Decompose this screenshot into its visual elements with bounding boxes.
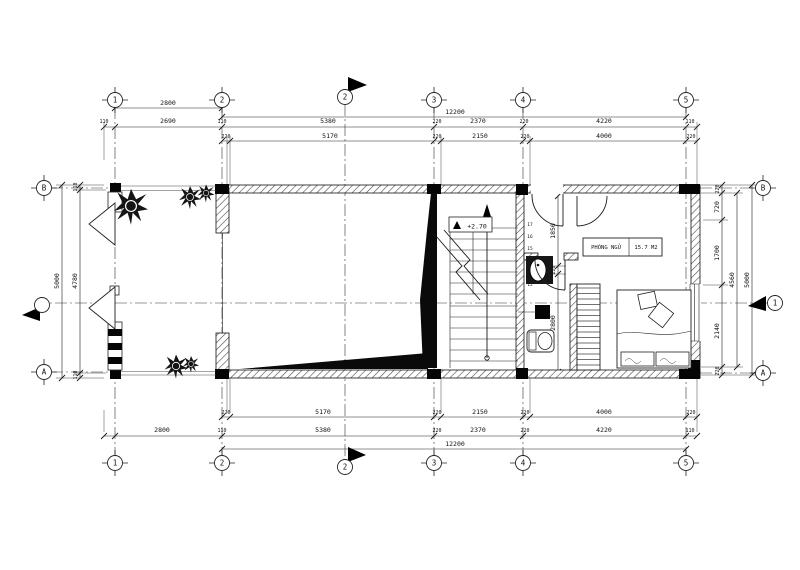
dim-label: 720 [713,201,721,213]
pillow [638,291,658,309]
floor-plan-canvas: +2.70 17 16 15 14 13 12 [0,0,800,570]
pier-yard-bottom [216,333,229,371]
dim-label: 220 [221,410,230,416]
grid-label: 4 [521,96,526,105]
dim-label: 110 [73,182,79,191]
stair-break-line [436,230,488,300]
grid-label: 2 [220,96,225,105]
wall-right [691,185,700,378]
grid-label: 3 [432,96,437,105]
dim-label: 220 [686,134,695,140]
dim-label: 4000 [596,132,612,140]
dim-label: 220 [520,428,529,434]
dimension-ticks [59,105,755,452]
section-flag-icon [348,77,367,92]
dim-label: 220 [686,410,695,416]
grid-label: 5 [684,96,689,105]
dim-label: 2140 [713,323,721,339]
level-label: +2.70 [467,223,487,231]
dim-label: 4220 [596,426,612,434]
dim-label: 110 [99,119,108,125]
dim-label: 110 [685,119,694,125]
tread-number: 15 [527,246,533,252]
grid-label: 2 [220,459,225,468]
gate-leaf-top [89,203,115,245]
dim-label: 220 [715,184,721,193]
dim-label: 1850 [549,223,557,239]
plants [114,185,215,379]
shrub-icon [198,185,215,203]
dim-label: 2370 [470,426,486,434]
tread-number: 16 [527,234,533,240]
dim-label: 12200 [445,440,465,448]
dim-label: 220 [432,428,441,434]
dim-label: 220 [432,410,441,416]
gate-leaf-bottom [89,287,115,329]
grid-label: 4 [521,459,526,468]
dim-label: 2150 [472,408,488,416]
grid-label: B [761,184,766,193]
wall-top [222,185,700,193]
dim-label: 2800 [549,315,557,331]
grid-label: A [761,369,766,378]
dim-label: 4000 [596,408,612,416]
tread-number: 17 [527,222,533,228]
dim-label: 220 [715,366,721,375]
section-label: 2 [343,463,348,472]
dim-label: 110 [217,119,226,125]
garage-ramp [240,193,437,369]
dim-label: 4780 [71,273,79,289]
dimension-texts: 2800 12200 110 2690 110 5380 220 2370 22… [53,99,751,448]
dim-label: 1700 [713,245,721,261]
bed-foot [621,352,654,366]
duct-shaft [535,305,550,319]
pier-yard-top [216,189,229,233]
dim-label: 110 [73,370,79,379]
dim-label: 110 [217,428,226,434]
toilet-bowl [538,333,552,350]
dimension-lines [56,105,757,452]
room-area-label: 15.7 M2 [634,245,657,251]
dim-label: 4560 [728,272,736,288]
grid-label: 5 [684,459,689,468]
dim-label: 2150 [472,132,488,140]
dim-label: 220 [519,119,528,125]
tree-icon [114,189,148,225]
dim-label: 12200 [445,108,465,116]
grid-label: 1 [113,96,118,105]
shrub-icon [183,356,199,373]
wall-stair-bath [516,193,524,370]
dim-label: 2800 [160,99,176,107]
dim-label: 110 [685,428,694,434]
bedroom-door [577,196,607,226]
dim-label: 5000 [743,272,751,288]
section-label: 1 [773,299,778,308]
balcony-door [532,194,563,226]
section-label: 2 [343,93,348,102]
wall-bath-top-right [564,253,578,260]
dim-label: 5380 [315,426,331,434]
doors [532,194,607,226]
shrub-icon [179,186,201,209]
floor-plan-svg: +2.70 17 16 15 14 13 12 [0,0,800,570]
dim-label: 220 [551,265,557,274]
grid-label: A [42,368,47,377]
grid-label: B [42,184,47,193]
dim-label: 220 [520,134,529,140]
dim-label: 4220 [596,117,612,125]
room-name-label: PHÒNG NGỦ [591,243,621,251]
dim-label: 5170 [322,132,338,140]
grid-lines [35,104,770,459]
wall-wardrobe [570,284,577,370]
grid-bubbles: 1 2 3 4 5 1 2 3 4 5 B A B A [31,87,776,476]
wardrobe [577,284,600,370]
dim-label: 220 [432,134,441,140]
yard [89,185,216,379]
dim-label: 220 [432,119,441,125]
dim-label: 5000 [53,273,61,289]
dim-label: 5170 [315,408,331,416]
wall-bottom [222,370,700,378]
dim-label: 2690 [160,117,176,125]
bed-foot [656,352,689,366]
dim-label: 220 [520,410,529,416]
dim-label: 2800 [154,426,170,434]
dim-label: 220 [221,134,230,140]
section-markers: 2 2 1 [22,77,783,475]
grid-label: 3 [432,459,437,468]
dim-label: 2370 [470,117,486,125]
columns [110,183,700,379]
door-opening-top [531,184,563,194]
sink-basin [530,259,546,281]
dim-label: 5380 [320,117,336,125]
section-flag-icon [748,296,766,311]
grid-label: 1 [113,459,118,468]
